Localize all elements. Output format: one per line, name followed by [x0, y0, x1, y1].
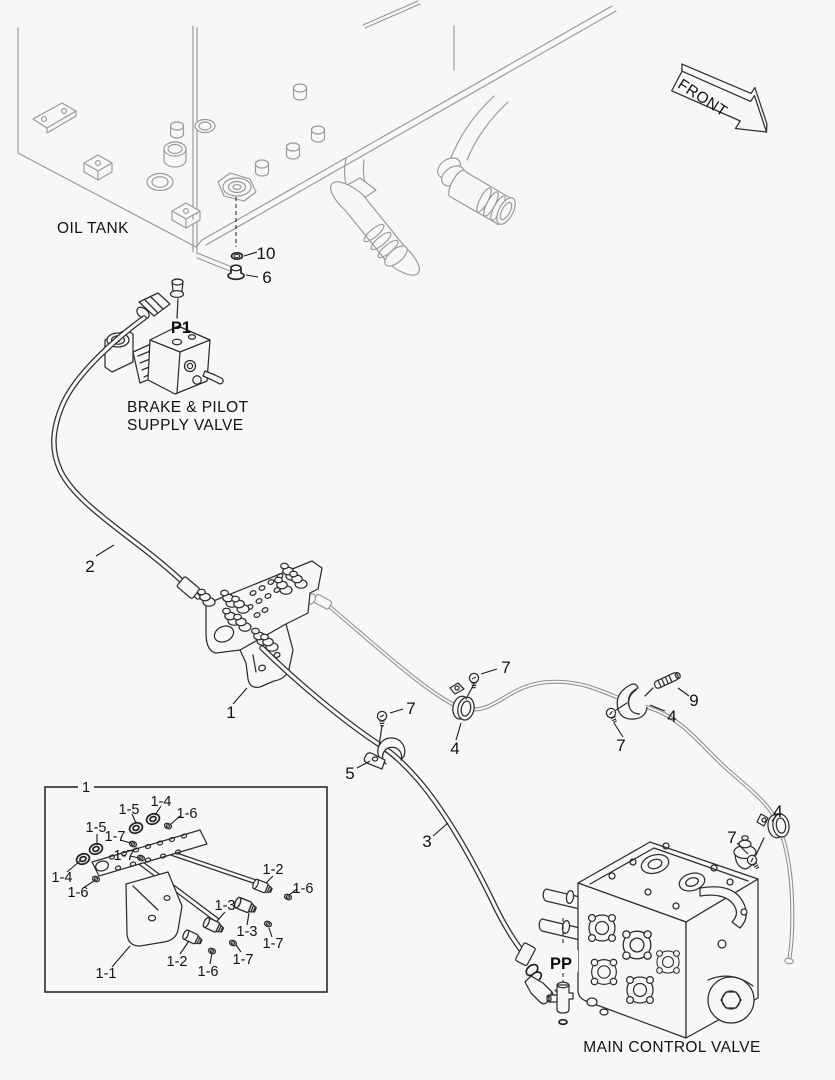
- callout-3: 3: [422, 832, 431, 851]
- inset-label-1-6b: 1-6: [68, 885, 89, 901]
- clamp-4b-drawing: 9 4 7: [605, 671, 699, 755]
- front-direction-arrow: FRONT: [667, 47, 784, 146]
- callout-1: 1: [226, 703, 235, 722]
- inset-label-1-5b: 1-5: [86, 820, 107, 836]
- callout-2: 2: [85, 557, 94, 576]
- port-pp-label: PP: [550, 955, 572, 973]
- hose-3-drawing: 3: [262, 648, 528, 958]
- suction-hoses-drawing: [331, 96, 519, 275]
- inset-label-1-7c: 1-7: [263, 936, 284, 952]
- oil-tank-label: OIL TANK: [57, 220, 129, 237]
- bracket-assembly-drawing: 1: [198, 561, 322, 722]
- callout-4b: 4: [667, 707, 676, 726]
- inset-label-1-6a: 1-6: [177, 806, 198, 822]
- inset-label-1-3b: 1-3: [237, 924, 258, 940]
- port-p1-label: P1: [171, 319, 191, 337]
- callout-7d: 7: [727, 828, 736, 847]
- inset-callout-1: 1: [82, 780, 90, 796]
- callout-4c: 4: [773, 802, 782, 821]
- inset-label-1-7a: 1-7: [105, 829, 126, 845]
- inset-label-1-2a: 1-2: [263, 862, 284, 878]
- inset-label-1-4b: 1-4: [52, 870, 73, 886]
- main-control-valve-drawing: [539, 836, 758, 1038]
- piping-diagram: FRONT OIL TANK 10 6: [0, 0, 835, 1080]
- inset-label-1-7d: 1-7: [233, 952, 254, 968]
- callout-9: 9: [689, 691, 698, 710]
- brake-pilot-valve-label-line1: BRAKE & PILOT: [127, 399, 249, 416]
- brake-pilot-valve-label-line2: SUPPLY VALVE: [127, 417, 244, 434]
- callout-6: 6: [262, 268, 271, 287]
- p-clamp-5-drawing: 7 5: [345, 699, 415, 783]
- callout-7b: 7: [616, 736, 625, 755]
- callout-5: 5: [345, 764, 354, 783]
- callout-7a: 7: [501, 658, 510, 677]
- inset-label-1-4a: 1-4: [151, 794, 172, 810]
- callout-4a: 4: [450, 739, 459, 758]
- inset-label-1-3a: 1-3: [215, 898, 236, 914]
- main-control-valve-label: MAIN CONTROL VALVE: [583, 1039, 760, 1056]
- callout-10: 10: [257, 244, 276, 263]
- washer-and-nut-items: 10 6: [228, 197, 275, 287]
- inset-label-1-2b: 1-2: [167, 954, 188, 970]
- parts-diagram-page: FRONT OIL TANK 10 6: [0, 0, 835, 1080]
- inset-label-1-7b: 1-7: [114, 848, 135, 864]
- inset-detail-box: 1: [45, 780, 327, 992]
- callout-7c: 7: [406, 699, 415, 718]
- inset-label-1-1: 1-1: [96, 966, 117, 982]
- inset-label-1-6d: 1-6: [198, 964, 219, 980]
- inset-label-1-5a: 1-5: [119, 802, 140, 818]
- inset-label-1-6c: 1-6: [293, 881, 314, 897]
